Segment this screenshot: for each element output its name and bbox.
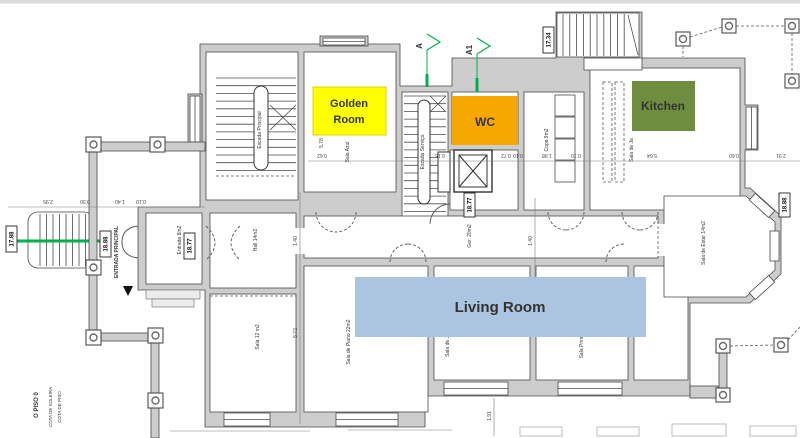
floor-plan-svg: Escada Principal Escada Serviço [0, 0, 800, 438]
column [86, 260, 101, 275]
level-18.77-elevator: 18.77 [464, 193, 475, 217]
label-entrada-principal: ENTRADA PRINCIPAL [114, 226, 120, 278]
title-block: O PISO 0 COTA DE SOLEIRA COTA DE PISO [34, 387, 62, 427]
column [676, 32, 690, 46]
dim: 5.78 [319, 138, 325, 148]
dim: 0.70 [571, 152, 581, 158]
level-17.88: 17.88 [6, 226, 17, 252]
dim: 1.40 [528, 236, 534, 246]
dim: 0.62 [317, 152, 327, 158]
dim: 0.10 [136, 198, 146, 204]
label-ger: Ger. 20m2 [467, 224, 473, 248]
dim: 1.91 [487, 411, 493, 421]
svg-text:18.77: 18.77 [468, 197, 474, 213]
dim: 0.15 [435, 152, 445, 158]
dim: 2.91 [776, 152, 786, 158]
svg-text:18.88: 18.88 [104, 236, 110, 252]
label-sala-estar: Sala de Estar 14m2 [701, 221, 707, 265]
room-sala-12 [210, 294, 296, 412]
plan-subtitle-1: COTA DE SOLEIRA [48, 387, 53, 427]
room-sala-estar [664, 196, 775, 297]
room-stair-hall [206, 52, 298, 200]
level-18.77-entrada: 18.77 [184, 233, 195, 259]
section-marker-a: A [415, 34, 440, 87]
column [716, 339, 730, 353]
entrance-arrow [123, 286, 133, 296]
plan-subtitle-2: COTA DE PISO [57, 391, 62, 423]
living-room-label: Living Room [455, 299, 546, 316]
dim: 2.95 [43, 198, 53, 204]
dim: 5.72 [293, 328, 299, 338]
label-sala-piano: Sala de Piano 22m2 [346, 319, 352, 364]
column [785, 19, 799, 33]
label-escada-servico: Escada Serviço [420, 134, 426, 169]
elevator [438, 150, 492, 192]
label-sala-princ: Sala Princ [579, 335, 585, 358]
column [148, 328, 163, 343]
top-border-strip [0, 0, 800, 4]
section-label-a1: A1 [465, 44, 474, 55]
dim: 5.64 [647, 152, 657, 158]
label-sala-12: Sala 12 m2 [255, 324, 261, 350]
floor-plan-canvas: Escada Principal Escada Serviço [0, 0, 800, 438]
wc-label: WC [475, 115, 495, 129]
section-label-a: A [415, 43, 424, 49]
level-18.88-east: 18.88 [779, 193, 790, 217]
column [722, 19, 736, 33]
kitchen-label: Kitchen [641, 99, 685, 113]
column [148, 393, 163, 408]
southeast-pergola [716, 327, 800, 402]
dim: 0.30 [80, 198, 90, 204]
column [86, 137, 101, 152]
golden-room-label-1: Golden [330, 98, 368, 110]
column [86, 330, 101, 345]
column [774, 338, 788, 352]
label-hall: Hall 14m2 [253, 229, 259, 252]
label-escada-principal: Escada Principal [257, 111, 263, 148]
dim: 1.98 [542, 152, 552, 158]
dim: 0.72 [501, 152, 511, 158]
svg-text:17.34: 17.34 [547, 32, 553, 48]
label-sala-azul: Sala Azul [345, 142, 351, 163]
column [785, 74, 799, 88]
dim: 0.60 [729, 152, 739, 158]
plan-title: O PISO 0 [34, 392, 40, 418]
svg-text:18.77: 18.77 [188, 238, 194, 254]
level-18.88-porch: 18.88 [100, 231, 111, 257]
dim: 0.10 [513, 152, 523, 158]
column [716, 388, 730, 402]
level-17.34: 17.34 [543, 27, 554, 53]
column [150, 137, 165, 152]
golden-room-label-2: Room [333, 114, 364, 126]
label-copa: Copa 9m2 [544, 128, 550, 151]
svg-text:18.88: 18.88 [783, 197, 789, 213]
dim: 1.40 [115, 198, 125, 204]
svg-text:17.88: 17.88 [10, 231, 16, 247]
label-entrada: Entrada 8m2 [177, 225, 183, 254]
dim: 1.40 [293, 236, 299, 246]
room-corridor [304, 216, 658, 258]
label-sala-jantar-top: Sala de Ja [629, 138, 635, 162]
southeast-wall-stub [690, 386, 718, 398]
golden-room-overlay [313, 87, 386, 135]
